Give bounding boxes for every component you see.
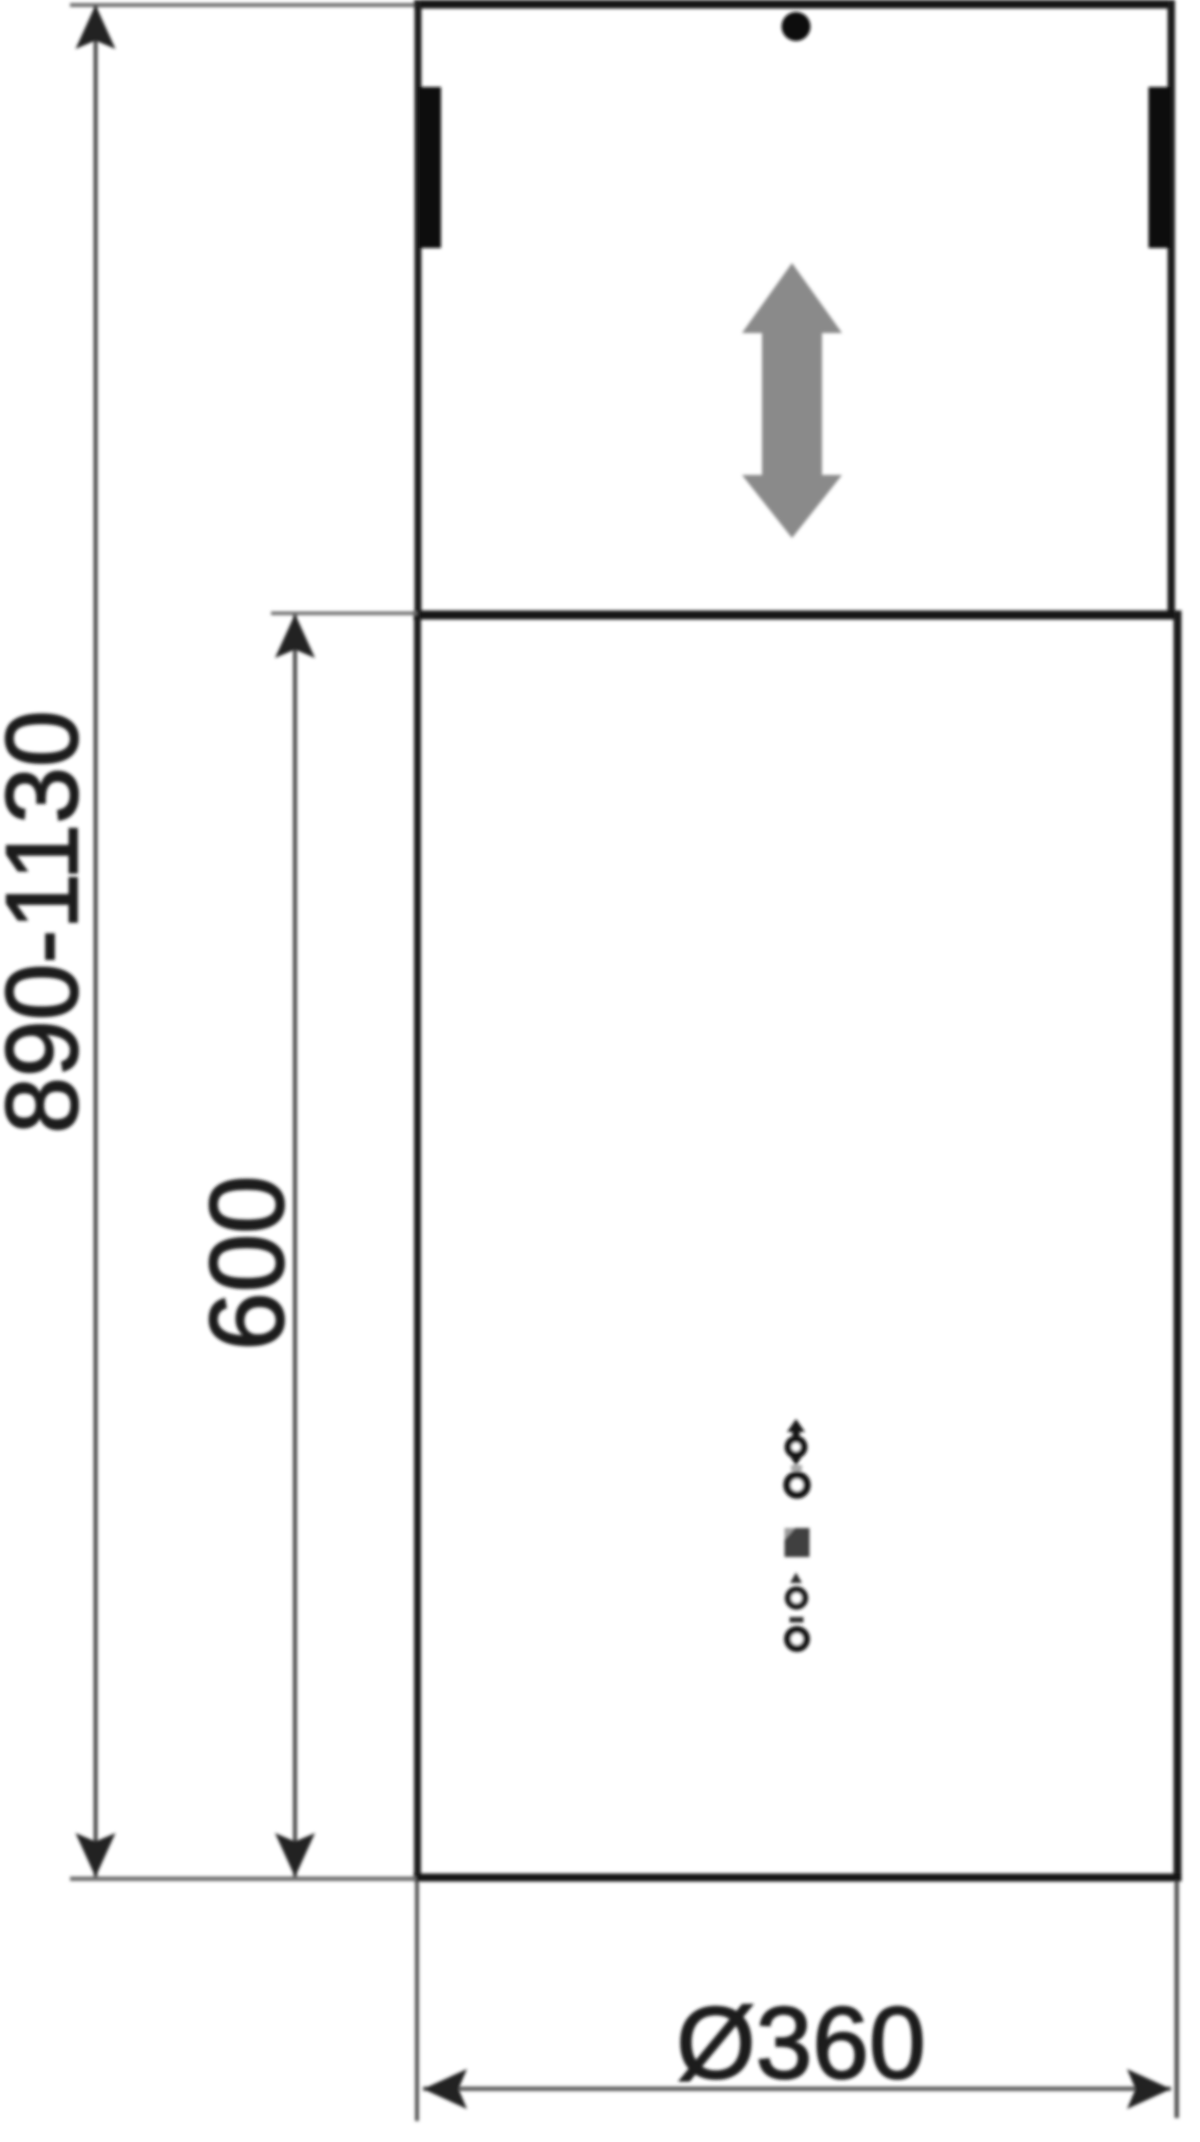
svg-text:Ø360: Ø360 [676, 1986, 926, 2100]
svg-text:600: 600 [189, 1175, 306, 1350]
svg-text:890-1130: 890-1130 [0, 710, 99, 1134]
